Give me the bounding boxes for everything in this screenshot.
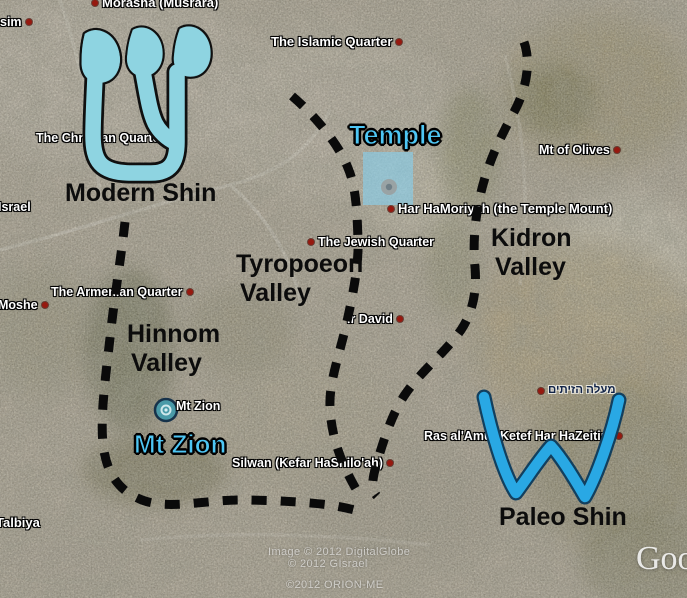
mt-zion-big-label: Mt Zion bbox=[134, 431, 226, 457]
satellite-map-canvas[interactable]: Morasha (Musrara) sim The Islamic Quarte… bbox=[0, 0, 687, 598]
modern-shin-label: Modern Shin bbox=[65, 179, 216, 208]
google-watermark-logo: Google bbox=[636, 540, 687, 578]
modern-shin-glyph bbox=[78, 27, 210, 173]
tyropoeon-valley-label: TyropoeonValley bbox=[236, 250, 363, 308]
imagery-credit-gisrael: © 2012 GIsrael bbox=[288, 558, 368, 570]
temple-label: Temple bbox=[349, 122, 442, 149]
paleo-shin-glyph bbox=[484, 397, 619, 497]
hinnom-valley-label: HinnomValley bbox=[127, 320, 220, 378]
kidron-valley-label: KidronValley bbox=[491, 224, 572, 282]
paleo-shin-label: Paleo Shin bbox=[499, 503, 627, 532]
imagery-credit-digitalglobe: Image © 2012 DigitalGlobe bbox=[268, 546, 410, 558]
imagery-credit-orionme: ©2012 ORION-ME bbox=[286, 579, 383, 591]
